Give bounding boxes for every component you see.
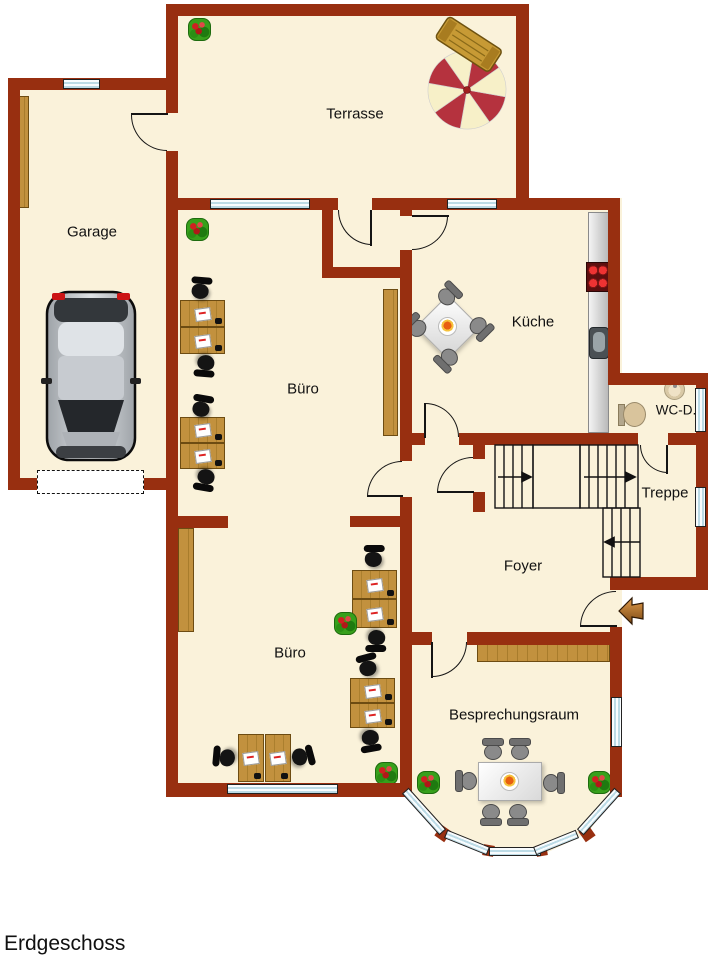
office-desk bbox=[352, 599, 397, 628]
room-label-besprechungsraum: Besprechungsraum bbox=[449, 707, 579, 724]
plant bbox=[334, 612, 357, 635]
office-desk bbox=[350, 678, 395, 703]
window bbox=[695, 487, 706, 527]
window bbox=[63, 79, 100, 89]
dining-chair bbox=[543, 770, 565, 794]
office-chair bbox=[211, 742, 239, 772]
stove bbox=[586, 262, 610, 292]
wall bbox=[400, 250, 412, 443]
room-label-terrasse: Terrasse bbox=[326, 106, 384, 123]
garage-door bbox=[37, 470, 144, 494]
wall bbox=[668, 433, 708, 445]
room-label-kueche: Küche bbox=[512, 314, 555, 331]
door-leaf bbox=[666, 445, 668, 474]
room-label-wc: WC-D. bbox=[656, 403, 697, 418]
toilet bbox=[623, 402, 646, 427]
dining-chair bbox=[507, 804, 531, 826]
wall bbox=[400, 443, 412, 461]
entrance-arrow-icon bbox=[619, 598, 643, 624]
door-leaf bbox=[424, 403, 426, 438]
dining-chair bbox=[507, 738, 531, 760]
office-cabinet bbox=[383, 289, 398, 436]
wall bbox=[516, 4, 529, 210]
door-leaf bbox=[131, 113, 168, 115]
plant bbox=[417, 771, 440, 794]
wall bbox=[350, 516, 412, 527]
plant bbox=[375, 762, 398, 785]
wall bbox=[459, 433, 638, 445]
wall bbox=[400, 433, 425, 445]
room-label-buero-oben: Büro bbox=[287, 381, 319, 398]
floor-plan: Terrasse Garage Büro Küche WC-D. Treppe … bbox=[0, 0, 714, 965]
office-chair bbox=[356, 727, 384, 753]
wall bbox=[400, 497, 412, 790]
office-chair bbox=[360, 544, 388, 570]
window bbox=[210, 199, 310, 209]
office-chair bbox=[186, 275, 216, 303]
dining-chair bbox=[480, 738, 504, 760]
wall bbox=[473, 492, 485, 512]
plant bbox=[588, 771, 611, 794]
office-desk bbox=[180, 327, 225, 354]
wall bbox=[400, 198, 412, 216]
sideboard bbox=[477, 644, 610, 662]
window bbox=[227, 784, 338, 794]
kitchen-sink bbox=[589, 327, 609, 359]
room-label-foyer: Foyer bbox=[504, 558, 542, 575]
door-leaf bbox=[431, 642, 433, 678]
window bbox=[447, 199, 497, 209]
plant bbox=[186, 218, 209, 241]
office-desk bbox=[180, 417, 225, 443]
kitchen-counter bbox=[588, 212, 609, 433]
window bbox=[611, 697, 622, 747]
wall bbox=[8, 478, 38, 490]
door-leaf bbox=[437, 491, 474, 493]
office-desk bbox=[350, 703, 395, 728]
office-desk bbox=[238, 734, 264, 782]
door-leaf bbox=[367, 495, 403, 497]
wall bbox=[610, 577, 708, 590]
food-plate bbox=[500, 772, 519, 791]
door-leaf bbox=[370, 210, 372, 246]
wall bbox=[608, 198, 620, 385]
office-chair bbox=[353, 652, 383, 680]
door-leaf bbox=[412, 215, 449, 217]
wall bbox=[8, 78, 20, 490]
office-chair bbox=[190, 351, 220, 379]
door-leaf bbox=[580, 625, 617, 627]
plant bbox=[188, 18, 211, 41]
dining-chair bbox=[455, 770, 477, 794]
wall bbox=[166, 151, 178, 797]
wall bbox=[166, 4, 529, 16]
wall bbox=[608, 373, 708, 385]
office-desk bbox=[180, 300, 225, 327]
office-desk bbox=[265, 734, 291, 782]
food-plate bbox=[438, 317, 457, 336]
wall bbox=[322, 267, 412, 278]
floor-title: Erdgeschoss bbox=[4, 932, 125, 956]
office-cabinet bbox=[178, 528, 194, 632]
office-desk bbox=[352, 570, 397, 599]
wall bbox=[172, 516, 228, 528]
office-chair bbox=[288, 742, 316, 772]
window bbox=[695, 388, 706, 432]
office-chair bbox=[362, 627, 390, 653]
room-label-buero-unten: Büro bbox=[274, 645, 306, 662]
room-label-garage: Garage bbox=[67, 224, 117, 241]
wall bbox=[166, 4, 178, 113]
wall bbox=[473, 445, 485, 459]
dining-chair bbox=[480, 804, 504, 826]
wall bbox=[412, 632, 432, 645]
wall bbox=[467, 632, 616, 645]
room-label-treppe: Treppe bbox=[642, 485, 689, 502]
